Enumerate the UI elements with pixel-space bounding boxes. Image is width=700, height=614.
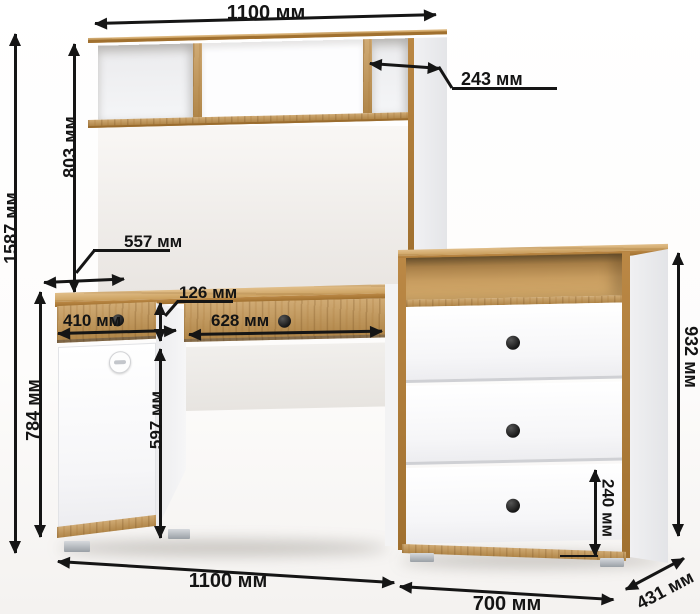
dim-tick-bottom-drawer	[560, 555, 598, 557]
hutch-compartment-middle-open	[202, 39, 363, 117]
desk-left-cabinet	[57, 302, 157, 546]
hutch-divider-left	[193, 43, 202, 117]
dim-label-left-drawer-width: 410 мм	[63, 312, 121, 329]
chest-open-shelf-niche	[406, 253, 622, 300]
chest-foot-right	[600, 558, 624, 567]
dim-label-total-height: 1587 мм	[2, 192, 20, 264]
dim-arrow-desk-depth	[44, 278, 124, 284]
dim-arrow-bottom-drawer-height	[594, 470, 597, 556]
dim-label-hutch-width: 1100 мм	[227, 3, 306, 23]
cabinet-door	[58, 343, 156, 527]
dim-label-desk-width: 1100 мм	[189, 571, 268, 591]
chest-right-front-edge	[622, 252, 630, 558]
dim-arrow-total-height	[14, 34, 17, 553]
dim-label-chest-height: 932 мм	[682, 326, 700, 388]
hutch-compartment-left	[98, 43, 193, 119]
dim-arrow-drawer-height	[159, 303, 162, 341]
dim-label-chest-depth: 431 мм	[634, 568, 697, 613]
hutch	[88, 29, 447, 298]
dim-label-hutch-height: 803 мм	[61, 116, 79, 178]
dim-label-chest-width: 700 мм	[473, 594, 542, 614]
knee-space-back-panel	[186, 342, 385, 411]
dim-label-drawer-height: 126 мм	[179, 284, 237, 301]
dim-label-bottom-drawer-height: 240 мм	[600, 479, 617, 537]
chest-right-side-face	[630, 249, 668, 563]
dim-label-desk-height: 784 мм	[24, 379, 42, 441]
dim-label-center-drawer-width: 628 мм	[211, 312, 269, 329]
hutch-compartment-right	[372, 38, 408, 113]
dim-label-knee-height: 597 мм	[148, 391, 165, 449]
chest-left-edge	[398, 258, 406, 550]
chest-foot-left	[410, 553, 434, 562]
dim-label-shelf-depth: 243 мм	[461, 70, 523, 88]
hutch-divider-right	[363, 39, 372, 113]
cabinet-foot-front	[64, 541, 90, 552]
dim-arrow-chest-height	[677, 253, 680, 536]
cabinet-door-handle-slot	[114, 360, 126, 365]
dim-label-desk-depth: 557 мм	[124, 233, 182, 250]
chest-front	[406, 253, 622, 548]
furniture-dimension-diagram: 1100 мм 243 мм 803 мм 1587 мм 557 мм 126…	[0, 0, 700, 614]
